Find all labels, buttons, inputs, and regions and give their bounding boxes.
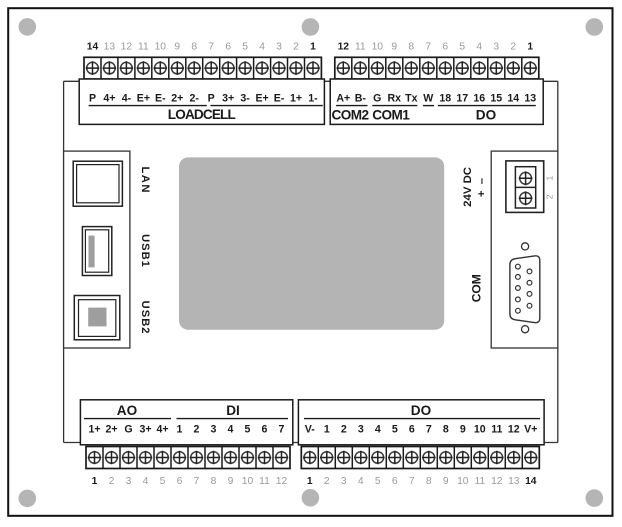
svg-text:3: 3 (126, 476, 132, 487)
svg-text:DO: DO (476, 108, 496, 123)
svg-text:12: 12 (508, 423, 520, 435)
svg-text:3: 3 (276, 42, 282, 53)
svg-text:V-: V- (305, 423, 315, 435)
svg-text:4: 4 (358, 476, 364, 487)
svg-text:USB1: USB1 (139, 234, 151, 268)
svg-text:10: 10 (372, 42, 384, 53)
svg-text:A+: A+ (336, 93, 350, 105)
svg-text:1: 1 (307, 476, 313, 487)
svg-text:DO: DO (411, 403, 431, 418)
svg-text:9: 9 (460, 423, 466, 435)
svg-text:4: 4 (375, 423, 381, 435)
svg-text:14: 14 (507, 93, 519, 105)
svg-text:B-: B- (355, 93, 367, 105)
svg-text:LOADCELL: LOADCELL (168, 107, 236, 122)
svg-text:4+: 4+ (103, 93, 115, 105)
svg-text:V+: V+ (524, 423, 537, 435)
svg-text:24V DC: 24V DC (462, 167, 474, 207)
svg-text:G: G (124, 423, 132, 435)
svg-text:W: W (423, 93, 433, 105)
svg-text:1-: 1- (308, 93, 318, 105)
svg-text:2: 2 (545, 194, 555, 199)
svg-text:G: G (373, 93, 381, 105)
svg-text:AO: AO (117, 403, 137, 418)
svg-text:3: 3 (341, 476, 347, 487)
svg-text:6: 6 (442, 42, 448, 53)
svg-text:2: 2 (293, 42, 299, 53)
svg-text:5: 5 (459, 42, 465, 53)
svg-text:12: 12 (121, 42, 133, 53)
svg-text:9: 9 (228, 476, 234, 487)
svg-text:10: 10 (155, 42, 167, 53)
svg-text:11: 11 (138, 42, 149, 53)
svg-text:7: 7 (279, 423, 285, 435)
svg-text:4: 4 (259, 42, 265, 53)
svg-text:5: 5 (392, 423, 398, 435)
svg-text:5: 5 (242, 42, 248, 53)
svg-text:6: 6 (392, 476, 398, 487)
svg-text:4: 4 (228, 423, 234, 435)
svg-text:2: 2 (324, 476, 330, 487)
svg-text:4: 4 (476, 42, 482, 53)
svg-text:14: 14 (87, 42, 99, 53)
svg-text:16: 16 (473, 93, 485, 105)
svg-text:COM: COM (470, 274, 484, 302)
svg-text:11: 11 (355, 42, 366, 53)
svg-text:E+: E+ (255, 93, 268, 105)
svg-text:13: 13 (508, 476, 520, 487)
svg-text:E+: E+ (137, 93, 150, 105)
svg-text:9: 9 (391, 42, 397, 53)
svg-text:7: 7 (194, 476, 200, 487)
svg-text:9: 9 (443, 476, 449, 487)
svg-text:1: 1 (177, 423, 183, 435)
svg-text:1: 1 (545, 175, 555, 180)
svg-text:12: 12 (276, 476, 288, 487)
svg-text:7: 7 (426, 423, 432, 435)
svg-text:USB2: USB2 (139, 301, 151, 335)
svg-text:11: 11 (474, 476, 485, 487)
svg-text:2: 2 (510, 42, 516, 53)
svg-text:Rx: Rx (388, 93, 402, 105)
svg-text:E-: E- (155, 93, 166, 105)
svg-text:13: 13 (104, 42, 116, 53)
svg-text:+ –: + – (476, 178, 488, 197)
svg-text:8: 8 (191, 42, 197, 53)
svg-text:11: 11 (491, 423, 502, 435)
svg-text:E-: E- (274, 93, 285, 105)
svg-text:P: P (89, 93, 96, 105)
svg-text:15: 15 (490, 93, 502, 105)
svg-text:17: 17 (456, 93, 468, 105)
svg-text:10: 10 (474, 423, 486, 435)
svg-text:1+: 1+ (88, 423, 100, 435)
svg-text:3+: 3+ (139, 423, 151, 435)
svg-text:6: 6 (177, 476, 183, 487)
svg-text:4+: 4+ (156, 423, 168, 435)
svg-text:12: 12 (338, 42, 350, 53)
svg-text:P: P (208, 93, 215, 105)
svg-text:11: 11 (259, 476, 270, 487)
svg-text:3+: 3+ (222, 93, 234, 105)
svg-text:3: 3 (211, 423, 217, 435)
svg-text:7: 7 (409, 476, 415, 487)
svg-text:6: 6 (225, 42, 231, 53)
svg-text:5: 5 (160, 476, 166, 487)
svg-text:10: 10 (242, 476, 254, 487)
svg-text:3-: 3- (240, 93, 250, 105)
svg-text:6: 6 (409, 423, 415, 435)
svg-text:4-: 4- (122, 93, 132, 105)
svg-text:18: 18 (439, 93, 451, 105)
svg-text:8: 8 (408, 42, 414, 53)
svg-text:1: 1 (324, 423, 330, 435)
svg-text:DI: DI (226, 403, 240, 418)
svg-text:3: 3 (493, 42, 499, 53)
svg-text:2-: 2- (189, 93, 199, 105)
svg-text:6: 6 (262, 423, 268, 435)
svg-text:1: 1 (527, 42, 533, 53)
svg-text:9: 9 (174, 42, 180, 53)
svg-text:8: 8 (211, 476, 217, 487)
svg-text:2+: 2+ (105, 423, 117, 435)
svg-text:Tx: Tx (405, 93, 417, 105)
svg-text:8: 8 (426, 476, 432, 487)
svg-text:12: 12 (491, 476, 503, 487)
svg-text:2: 2 (341, 423, 347, 435)
svg-text:COM1: COM1 (372, 108, 410, 123)
svg-text:5: 5 (245, 423, 251, 435)
svg-text:8: 8 (443, 423, 449, 435)
svg-text:4: 4 (143, 476, 149, 487)
svg-text:1: 1 (92, 476, 98, 487)
svg-text:3: 3 (358, 423, 364, 435)
svg-text:2: 2 (194, 423, 200, 435)
svg-text:14: 14 (525, 476, 537, 487)
svg-text:10: 10 (457, 476, 469, 487)
svg-text:5: 5 (375, 476, 381, 487)
svg-text:1: 1 (310, 42, 316, 53)
svg-text:LAN: LAN (139, 166, 151, 194)
svg-text:2: 2 (109, 476, 115, 487)
svg-text:COM2: COM2 (332, 108, 370, 123)
svg-text:1+: 1+ (290, 93, 302, 105)
svg-text:7: 7 (208, 42, 214, 53)
svg-text:7: 7 (425, 42, 431, 53)
svg-text:13: 13 (524, 93, 536, 105)
svg-text:2+: 2+ (171, 93, 183, 105)
